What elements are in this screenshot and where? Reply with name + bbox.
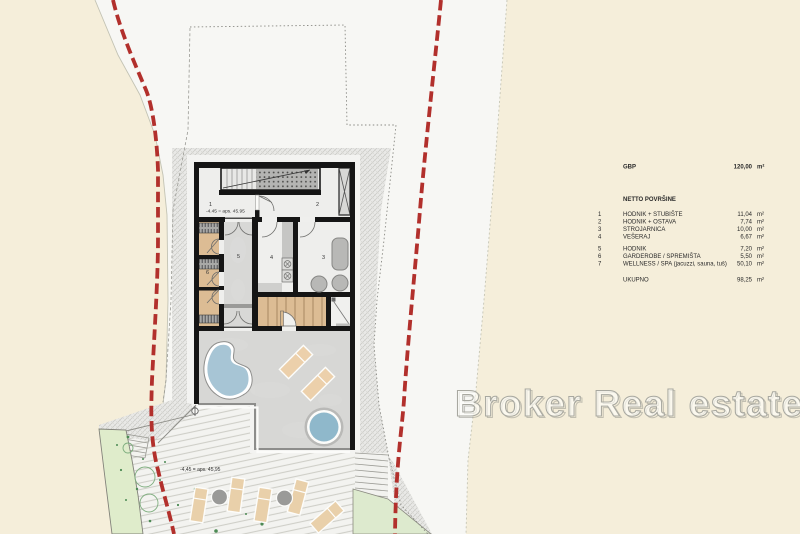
svg-text:UKUPNO: UKUPNO	[623, 278, 649, 284]
svg-text:10,00: 10,00	[737, 227, 753, 233]
svg-text:3: 3	[322, 255, 325, 261]
svg-text:STROJARNICA: STROJARNICA	[623, 227, 665, 233]
svg-text:-4,45 = aps. 45,95: -4,45 = aps. 45,95	[180, 467, 221, 473]
svg-text:HODNIK: HODNIK	[623, 247, 646, 253]
svg-text:-4.45 = aps. 45.95: -4.45 = aps. 45.95	[206, 209, 245, 215]
svg-text:98,25: 98,25	[737, 278, 753, 284]
svg-text:1: 1	[209, 202, 212, 208]
svg-text:120,00: 120,00	[734, 165, 753, 171]
svg-text:7,20: 7,20	[740, 247, 752, 253]
svg-text:m²: m²	[757, 262, 764, 268]
svg-text:HODNIK + OSTAVA: HODNIK + OSTAVA	[623, 220, 676, 226]
svg-text:11,04: 11,04	[737, 212, 752, 218]
svg-text:6: 6	[206, 270, 209, 276]
svg-text:6,67: 6,67	[740, 235, 752, 241]
svg-text:NETTO POVRŠINE: NETTO POVRŠINE	[623, 195, 676, 203]
svg-text:50,10: 50,10	[737, 262, 753, 268]
svg-text:7,74: 7,74	[740, 220, 752, 226]
svg-text:m²: m²	[757, 220, 764, 226]
svg-text:VEŠERAJ: VEŠERAJ	[623, 234, 650, 241]
svg-text:5: 5	[237, 254, 240, 260]
svg-text:m²: m²	[757, 254, 764, 260]
svg-text:2: 2	[316, 202, 319, 208]
svg-text:GBP: GBP	[623, 165, 636, 171]
svg-text:m²: m²	[757, 247, 764, 253]
svg-text:m²: m²	[757, 227, 764, 233]
svg-text:Broker Real estate: Broker Real estate	[455, 383, 800, 424]
svg-text:m²: m²	[757, 164, 764, 171]
svg-text:m²: m²	[757, 278, 764, 284]
svg-text:m²: m²	[757, 212, 764, 218]
svg-text:HODNIK + STUBIŠTE: HODNIK + STUBIŠTE	[623, 211, 683, 218]
svg-text:GARDEROBE / SPREMIŠTA: GARDEROBE / SPREMIŠTA	[623, 253, 701, 260]
svg-text:m²: m²	[757, 235, 764, 241]
svg-text:4: 4	[270, 255, 273, 261]
svg-text:5,50: 5,50	[740, 254, 752, 260]
svg-text:WELLNESS / SPA (jacuzzi, sauna: WELLNESS / SPA (jacuzzi, sauna, tuš)	[623, 262, 727, 268]
